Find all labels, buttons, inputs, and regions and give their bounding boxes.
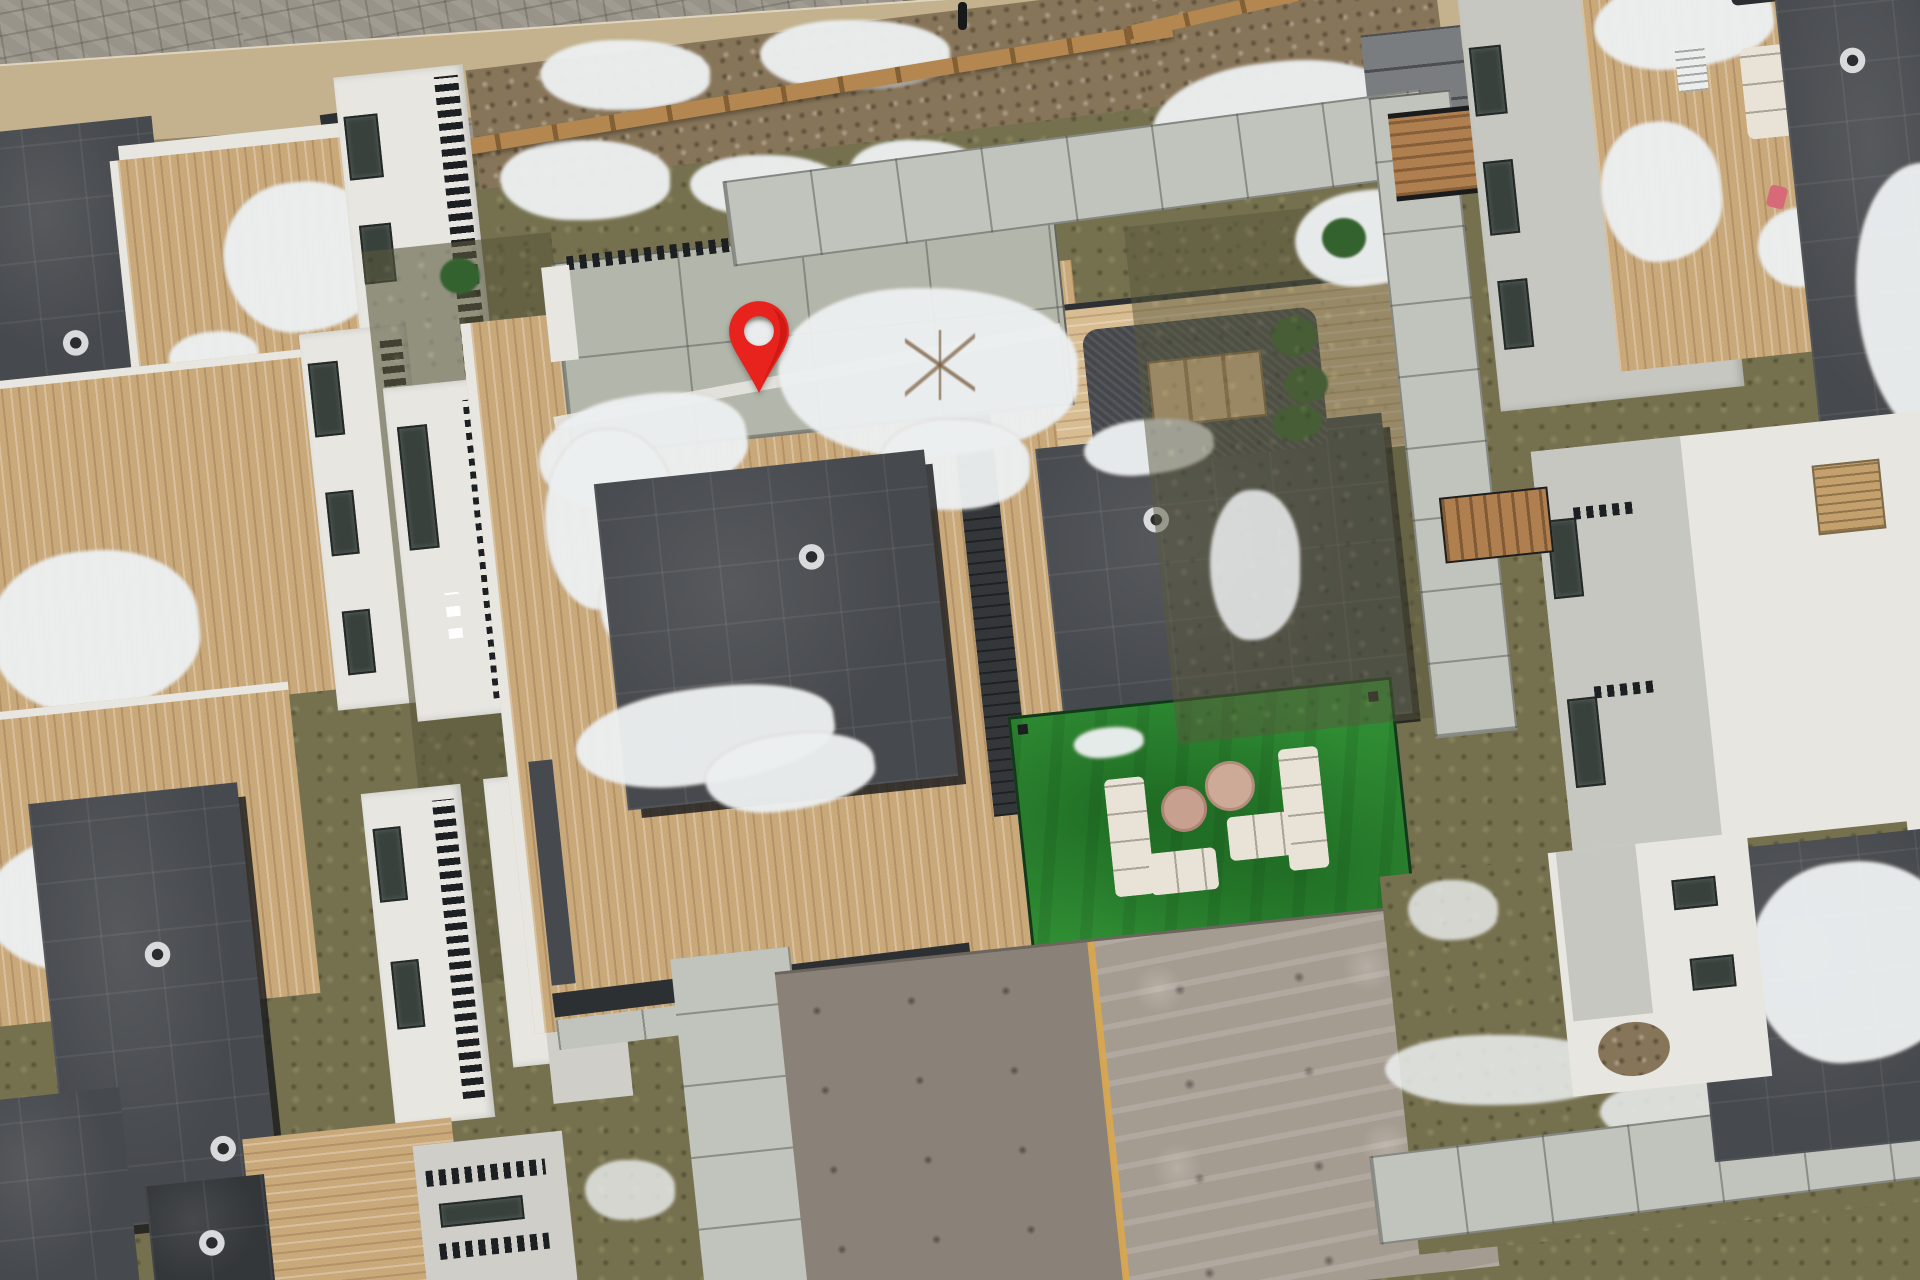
townhouse-roof: [0, 1087, 140, 1280]
window: [397, 424, 440, 550]
snow-patch: [1408, 880, 1498, 940]
sofa-sectional-right-seat: [1226, 811, 1292, 861]
building-gray-panel: [1556, 844, 1653, 1021]
roof-vent: [209, 1134, 238, 1163]
aerial-photo: [0, 0, 1920, 1280]
window: [439, 1195, 525, 1228]
balcony-railing: [439, 1233, 550, 1260]
chimney-vent: [1838, 46, 1867, 75]
balcony-railing: [425, 1159, 546, 1187]
stacked-chairs: [1812, 459, 1887, 536]
snow-patch: [585, 1160, 675, 1220]
townhouse-roof: [145, 1174, 276, 1280]
wood-ramp: [1439, 486, 1554, 563]
sofa-sectional-left-back: [1104, 776, 1156, 898]
roof-vent: [198, 1229, 227, 1258]
window: [342, 609, 377, 676]
round-pouf: [1159, 784, 1210, 835]
window: [1497, 278, 1534, 350]
roof-vent: [797, 543, 826, 572]
window: [372, 826, 408, 903]
map-pin-icon[interactable]: [727, 300, 791, 394]
window: [343, 113, 384, 180]
juniper-bush: [440, 258, 480, 294]
window: [390, 959, 425, 1030]
tree-shadow: [905, 330, 975, 400]
snow-patch: [1072, 724, 1145, 761]
snow-patch: [500, 140, 670, 220]
snow-patch: [1843, 153, 1920, 449]
round-pouf: [1202, 759, 1257, 814]
evergreen-bush: [1322, 218, 1366, 258]
window: [1690, 954, 1737, 990]
lamp-post: [958, 2, 967, 30]
corner-post: [1017, 724, 1028, 735]
snow-patch: [1594, 115, 1728, 267]
roof-vent: [61, 329, 90, 358]
roof-vent: [143, 940, 172, 969]
snow-patch: [1210, 490, 1300, 640]
window: [325, 490, 360, 557]
wall-vents: [445, 592, 464, 639]
townhouse-balcony-block: [413, 1131, 578, 1280]
snow-patch: [540, 40, 710, 110]
window: [308, 361, 346, 438]
patio-chair: [1674, 44, 1709, 93]
window: [1671, 876, 1718, 910]
rooftop-deck: [0, 349, 344, 726]
window: [1483, 159, 1521, 236]
window: [1469, 45, 1508, 117]
sofa-sectional-left-seat: [1148, 847, 1220, 896]
